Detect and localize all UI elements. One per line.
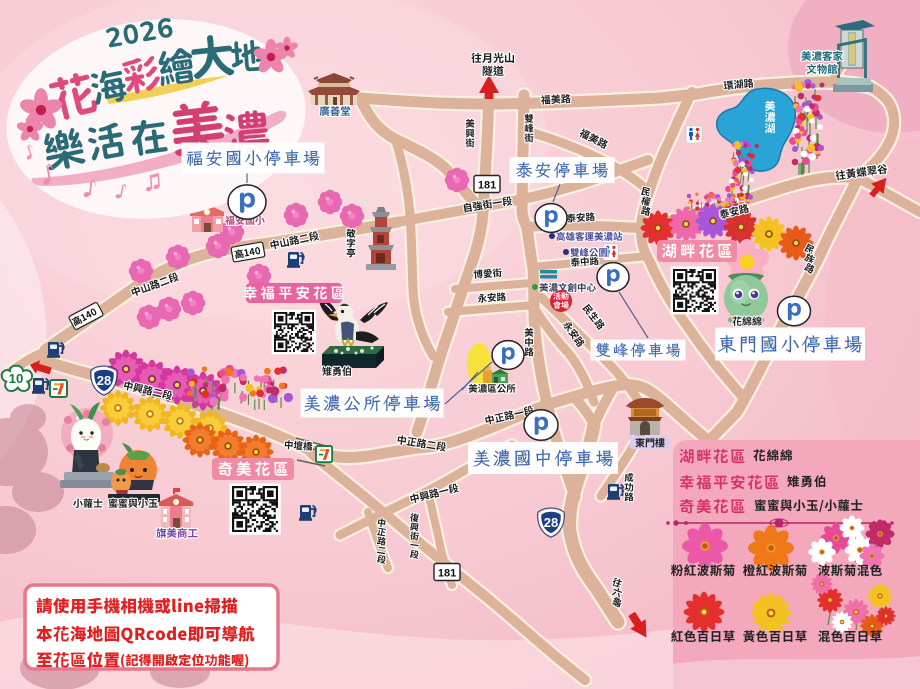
svg-text:28: 28: [97, 373, 111, 388]
svg-text:181: 181: [438, 568, 456, 580]
svg-text:10: 10: [9, 371, 24, 386]
svg-text:181: 181: [478, 180, 496, 192]
svg-text:28: 28: [544, 515, 558, 530]
